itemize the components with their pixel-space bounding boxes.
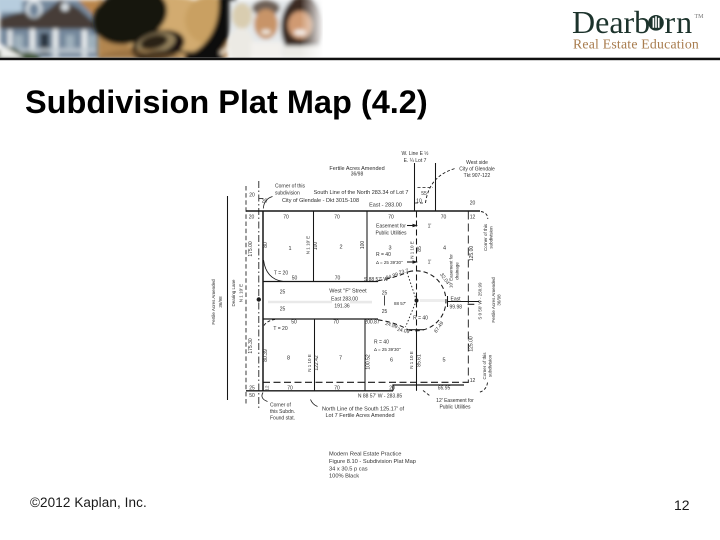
svg-text:3: 3 xyxy=(388,246,391,252)
svg-text:City of Glendale: City of Glendale xyxy=(459,167,495,173)
svg-text:88 57': 88 57' xyxy=(394,301,406,306)
svg-text:8: 8 xyxy=(287,356,290,362)
svg-text:East 283.00: East 283.00 xyxy=(331,297,358,303)
svg-text:12: 12 xyxy=(265,385,270,391)
svg-text:Public Utilities: Public Utilities xyxy=(439,405,471,411)
svg-text:34 x 30.5 p cas: 34 x 30.5 p cas xyxy=(329,466,368,472)
svg-text:23.7: 23.7 xyxy=(398,268,409,276)
svg-text:this Subdn.: this Subdn. xyxy=(270,409,295,415)
svg-text:175.00: 175.00 xyxy=(248,241,254,257)
svg-text:Public Utilities: Public Utilities xyxy=(375,231,407,237)
svg-text:T = 20: T = 20 xyxy=(274,271,288,277)
svg-text:Corner of: Corner of xyxy=(270,403,291,409)
svg-text:12' Easement for: 12' Easement for xyxy=(436,398,474,404)
svg-text:100% Black: 100% Black xyxy=(329,474,359,480)
svg-text:55: 55 xyxy=(421,191,427,197)
svg-text:12: 12 xyxy=(470,215,476,221)
svg-text:Dearing Lane: Dearing Lane xyxy=(231,279,236,307)
svg-text:6: 6 xyxy=(390,358,393,364)
svg-text:80.39: 80.39 xyxy=(263,349,269,362)
svg-text:N 1 10 E: N 1 10 E xyxy=(307,354,312,372)
svg-text:2: 2 xyxy=(339,245,342,251)
svg-text:191.36: 191.36 xyxy=(334,304,350,310)
svg-text:W. Line E ½: W. Line E ½ xyxy=(402,150,430,157)
svg-text:70: 70 xyxy=(283,215,289,221)
svg-text:125.00: 125.00 xyxy=(469,336,475,352)
svg-text:175.30: 175.30 xyxy=(248,338,254,354)
svg-text:East - 283.00: East - 283.00 xyxy=(369,203,402,209)
svg-text:drainage: drainage xyxy=(455,262,460,280)
svg-text:66.95: 66.95 xyxy=(438,386,451,392)
svg-text:20: 20 xyxy=(262,199,268,205)
svg-text:50: 50 xyxy=(291,320,297,326)
svg-text:70: 70 xyxy=(441,215,447,221)
svg-text:200.87: 200.87 xyxy=(364,320,380,326)
svg-text:94.99: 94.99 xyxy=(385,272,399,282)
svg-text:subdivision: subdivision xyxy=(488,354,493,377)
svg-text:125.00: 125.00 xyxy=(469,246,475,262)
svg-text:100.52: 100.52 xyxy=(366,354,372,370)
svg-text:100: 100 xyxy=(313,242,319,251)
svg-text:Figure 8.10 - Subdivision Pl: Figure 8.10 - Subdivision Plat Map xyxy=(329,459,416,465)
svg-text:25: 25 xyxy=(382,309,388,315)
svg-text:Corner of this: Corner of this xyxy=(483,223,488,251)
svg-text:Found stat.: Found stat. xyxy=(270,416,295,422)
svg-text:24.09: 24.09 xyxy=(396,327,410,336)
svg-text:1': 1' xyxy=(428,260,432,266)
svg-text:West "F" Street: West "F" Street xyxy=(329,289,367,295)
svg-text:Fertile Acres Amended: Fertile Acres Amended xyxy=(211,279,216,325)
svg-text:122.42: 122.42 xyxy=(314,355,320,371)
svg-text:Corner of this: Corner of this xyxy=(275,184,306,190)
svg-text:N 1 10 E: N 1 10 E xyxy=(409,351,414,369)
svg-text:City of Glendale - Dkt 3015-10: City of Glendale - Dkt 3015-108 xyxy=(282,198,359,204)
svg-text:R = 40: R = 40 xyxy=(413,316,428,322)
svg-text:Δ = 25 39'30": Δ = 25 39'30" xyxy=(374,347,401,352)
svg-text:South Line of the North 283.34: South Line of the North 283.34 of Lot 7 xyxy=(314,190,409,196)
svg-text:4: 4 xyxy=(443,246,446,252)
svg-text:1': 1' xyxy=(428,224,432,230)
svg-text:R = 40: R = 40 xyxy=(376,252,391,258)
svg-text:85: 85 xyxy=(417,246,423,252)
svg-text:36/98: 36/98 xyxy=(497,294,502,306)
svg-text:80: 80 xyxy=(263,242,269,248)
svg-text:50: 50 xyxy=(249,393,255,399)
svg-text:Lot 7 Fertile Acres Amended: Lot 7 Fertile Acres Amended xyxy=(325,413,394,419)
svg-text:25: 25 xyxy=(280,290,286,296)
svg-text:S 88 57' W: S 88 57' W xyxy=(364,277,389,283)
svg-text:70: 70 xyxy=(334,215,340,221)
svg-text:1: 1 xyxy=(288,246,291,252)
svg-text:N 88 57' W - 283.85: N 88 57' W - 283.85 xyxy=(358,394,403,400)
svg-text:subdivision: subdivision xyxy=(275,191,300,197)
svg-text:N 1 10' E: N 1 10' E xyxy=(306,236,311,254)
svg-text:E. ¼ Lot 7: E. ¼ Lot 7 xyxy=(404,158,427,164)
svg-text:25: 25 xyxy=(382,291,388,297)
svg-text:25: 25 xyxy=(280,307,286,313)
svg-text:East: East xyxy=(450,297,461,303)
svg-text:R = 40: R = 40 xyxy=(374,340,389,346)
svg-text:20: 20 xyxy=(249,215,255,221)
svg-text:7: 7 xyxy=(339,356,342,362)
svg-text:West side: West side xyxy=(466,160,488,166)
svg-text:20: 20 xyxy=(389,386,395,392)
svg-text:70: 70 xyxy=(335,276,341,282)
svg-text:Corner of this: Corner of this xyxy=(482,352,487,380)
svg-text:70: 70 xyxy=(333,320,339,326)
svg-text:99.98: 99.98 xyxy=(450,305,463,311)
svg-text:100: 100 xyxy=(360,241,366,250)
svg-text:50: 50 xyxy=(292,276,298,282)
svg-text:Tkt 907-122: Tkt 907-122 xyxy=(464,173,491,179)
svg-text:5: 5 xyxy=(442,358,445,364)
svg-text:70: 70 xyxy=(287,386,293,392)
svg-text:67.49: 67.49 xyxy=(433,320,445,334)
svg-text:subdivision: subdivision xyxy=(489,226,494,249)
svg-text:70: 70 xyxy=(388,215,394,221)
svg-text:36/98: 36/98 xyxy=(351,172,364,178)
svg-text:North Line of the South 125.17: North Line of the South 125.17' of xyxy=(322,407,405,413)
svg-text:20: 20 xyxy=(249,193,255,199)
svg-text:Δ = 25 39'30": Δ = 25 39'30" xyxy=(376,260,403,265)
svg-text:10: 10 xyxy=(416,199,422,205)
svg-text:12: 12 xyxy=(470,378,476,384)
svg-text:25: 25 xyxy=(249,386,255,392)
svg-text:36/98: 36/98 xyxy=(218,296,223,308)
svg-text:Fertile Acres Amended: Fertile Acres Amended xyxy=(491,277,496,323)
svg-text:70: 70 xyxy=(334,386,340,392)
svg-text:T = 20: T = 20 xyxy=(273,326,287,332)
svg-text:N 1 10 E: N 1 10 E xyxy=(410,241,415,259)
svg-text:Modern Real Estate Practice: Modern Real Estate Practice xyxy=(329,452,401,458)
svg-text:Easement for: Easement for xyxy=(376,224,406,230)
svg-text:S 0 50' W - 250.99: S 0 50' W - 250.99 xyxy=(478,282,483,320)
svg-text:20: 20 xyxy=(470,201,476,207)
svg-text:85.61: 85.61 xyxy=(417,354,423,367)
svg-text:N 1 10' E: N 1 10' E xyxy=(239,284,244,302)
